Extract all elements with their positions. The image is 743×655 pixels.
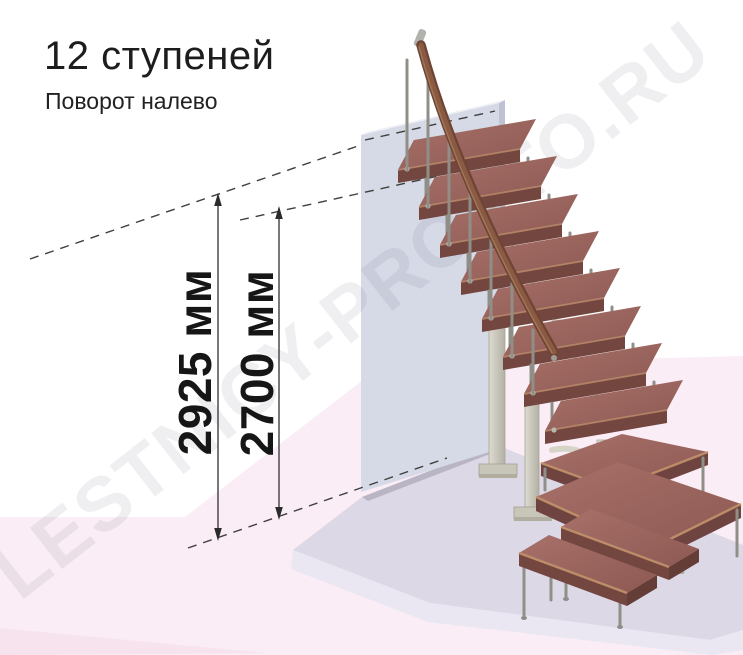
page-subtitle: Поворот налево	[45, 88, 218, 115]
handrail-end-fitting	[551, 355, 557, 361]
stair-diagram-page: LESTNICY-PROSTO.RU 2925 мм 2700 мм	[0, 0, 743, 655]
leg-foot	[563, 597, 569, 601]
leg-foot	[617, 625, 623, 629]
support-column-turn	[525, 398, 539, 512]
support-column-upper	[489, 314, 505, 470]
dimension-total-height-label: 2925 мм	[169, 269, 221, 456]
base-plate-edge	[479, 474, 517, 478]
base-plate-edge	[514, 517, 552, 521]
page-title: 12 ступеней	[44, 34, 274, 78]
dimension-top-step-label: 2700 мм	[231, 270, 283, 457]
leg-foot	[521, 616, 527, 620]
